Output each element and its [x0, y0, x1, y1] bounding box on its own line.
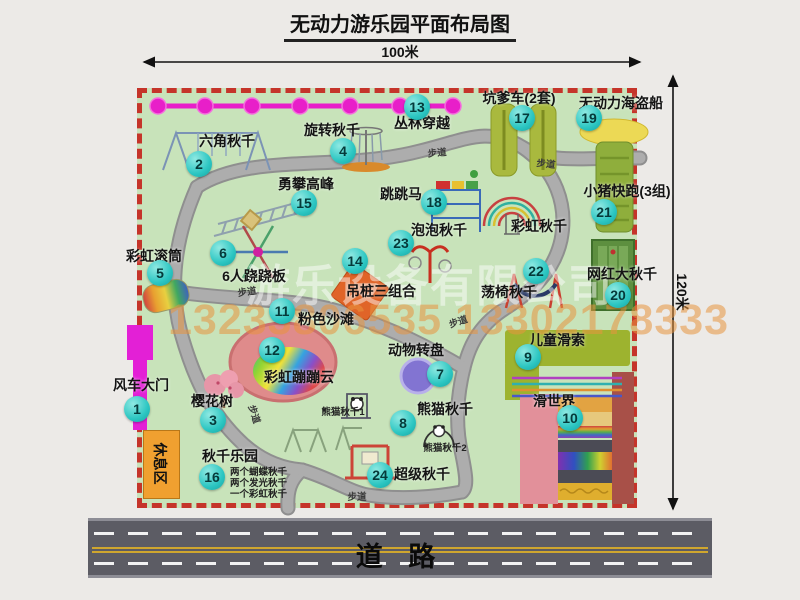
dimension-top-label: 100米 — [355, 42, 445, 62]
attraction-marker-18: 18 — [421, 189, 447, 215]
attraction-marker-9: 9 — [515, 344, 541, 370]
attraction-marker-1: 1 — [124, 396, 150, 422]
attraction-label-9: 儿童滑索 — [529, 330, 585, 350]
attraction-marker-19: 19 — [576, 105, 602, 131]
attraction-label-20: 网红大秋千 — [587, 264, 657, 284]
road: 道 路 — [88, 518, 712, 578]
attraction-marker-14: 14 — [342, 248, 368, 274]
attraction-label-6: 6人跷跷板 — [222, 266, 286, 286]
attraction-marker-10: 10 — [557, 405, 583, 431]
attraction-marker-15: 15 — [291, 190, 317, 216]
walkway-label-3: 步道 — [347, 489, 366, 503]
extra-label-2: 熊猫秋千2 — [423, 440, 466, 454]
extra-label-5: 一个彩虹秋千 — [230, 486, 287, 500]
attraction-marker-17: 17 — [509, 105, 535, 131]
park-plan-page: { "title": "无动力游乐园平面布局图", "dim_top": "10… — [0, 0, 800, 600]
attraction-marker-8: 8 — [390, 410, 416, 436]
attraction-marker-22: 22 — [523, 258, 549, 284]
attraction-label-22: 荡椅秋千 — [481, 282, 537, 302]
attraction-label-1: 风车大门 — [113, 375, 169, 395]
attraction-marker-11: 11 — [269, 298, 295, 324]
attraction-marker-20: 20 — [605, 282, 631, 308]
attraction-marker-2: 2 — [186, 151, 212, 177]
attraction-label-8: 熊猫秋千 — [417, 399, 473, 419]
attraction-marker-4: 4 — [330, 138, 356, 164]
attraction-marker-24: 24 — [367, 462, 393, 488]
attraction-marker-5: 5 — [147, 260, 173, 286]
walkway-label-1: 步道 — [427, 144, 447, 160]
attraction-label-2: 六角秋千 — [199, 131, 255, 151]
attraction-label-18: 跳跳马 — [380, 184, 422, 204]
walkway-label-4: 步道 — [536, 155, 556, 171]
attraction-marker-7: 7 — [427, 361, 453, 387]
attraction-label-12: 彩虹蹦蹦云 — [264, 367, 334, 387]
attraction-label-21: 小猪快跑(3组) — [583, 181, 670, 201]
extra-label-1: 熊猫秋千1 — [321, 404, 364, 418]
attraction-marker-6: 6 — [210, 240, 236, 266]
attraction-marker-21: 21 — [591, 199, 617, 225]
extra-label-0: 彩虹秋千 — [511, 216, 567, 236]
page-title: 无动力游乐园平面布局图 — [0, 8, 800, 37]
attraction-marker-3: 3 — [200, 407, 226, 433]
attraction-marker-23: 23 — [388, 230, 414, 256]
attraction-label-14: 吊桩三组合 — [346, 281, 416, 301]
rest-area-label: 休息区 — [129, 447, 192, 480]
attraction-label-11: 粉色沙滩 — [298, 309, 354, 329]
road-label: 道 路 — [88, 535, 712, 574]
attraction-label-4: 旋转秋千 — [304, 120, 360, 140]
attraction-marker-13: 13 — [404, 94, 430, 120]
attraction-label-24: 超级秋千 — [394, 464, 450, 484]
attraction-label-7: 动物转盘 — [388, 340, 444, 360]
attraction-marker-12: 12 — [259, 337, 285, 363]
attraction-label-23: 泡泡秋千 — [411, 220, 467, 240]
attraction-label-16: 秋千乐园 — [202, 446, 258, 466]
attraction-marker-16: 16 — [199, 464, 225, 490]
